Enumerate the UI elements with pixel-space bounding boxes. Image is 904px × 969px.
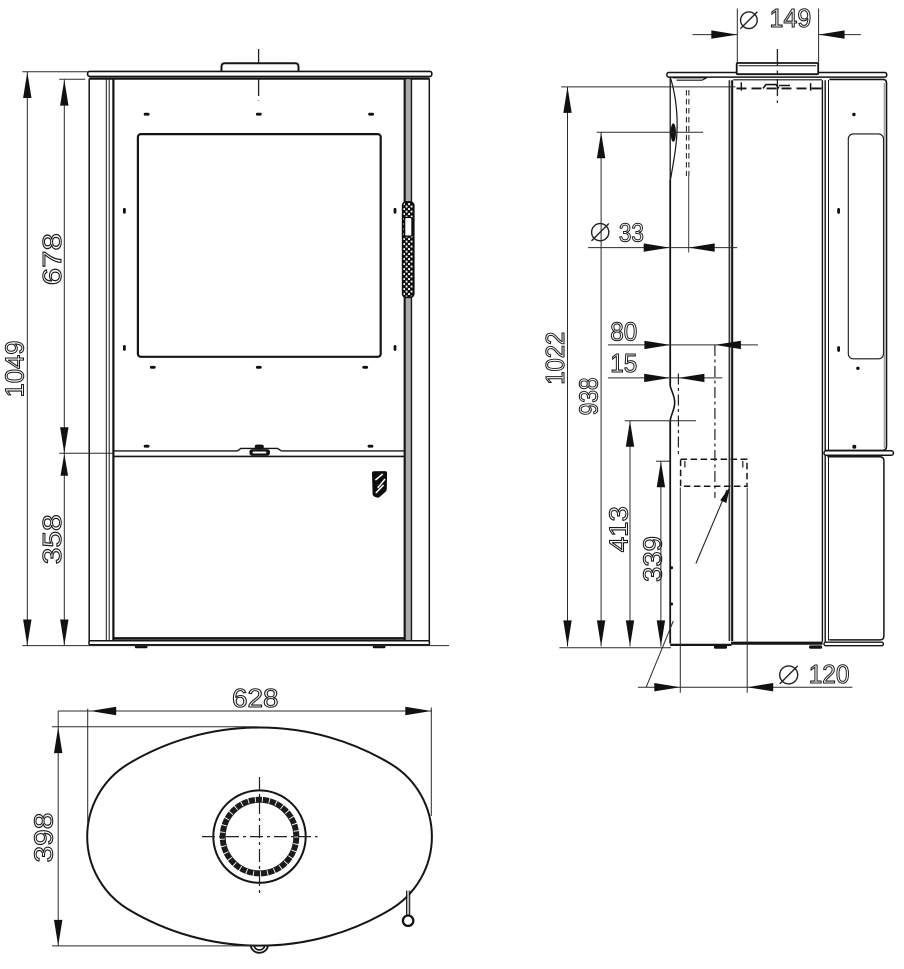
svg-text:358: 358 [37, 514, 67, 564]
svg-text:413: 413 [604, 506, 634, 552]
svg-text:678: 678 [37, 233, 67, 285]
svg-text:149: 149 [770, 3, 812, 33]
svg-text:628: 628 [232, 683, 279, 713]
svg-text:339: 339 [637, 536, 667, 582]
svg-text:120: 120 [809, 659, 850, 689]
svg-text:33: 33 [619, 218, 644, 248]
svg-text:15: 15 [610, 348, 637, 378]
svg-text:1049: 1049 [0, 341, 29, 398]
svg-text:398: 398 [29, 813, 59, 863]
svg-text:80: 80 [610, 317, 637, 347]
svg-text:938: 938 [573, 377, 603, 415]
svg-text:1022: 1022 [540, 332, 570, 385]
